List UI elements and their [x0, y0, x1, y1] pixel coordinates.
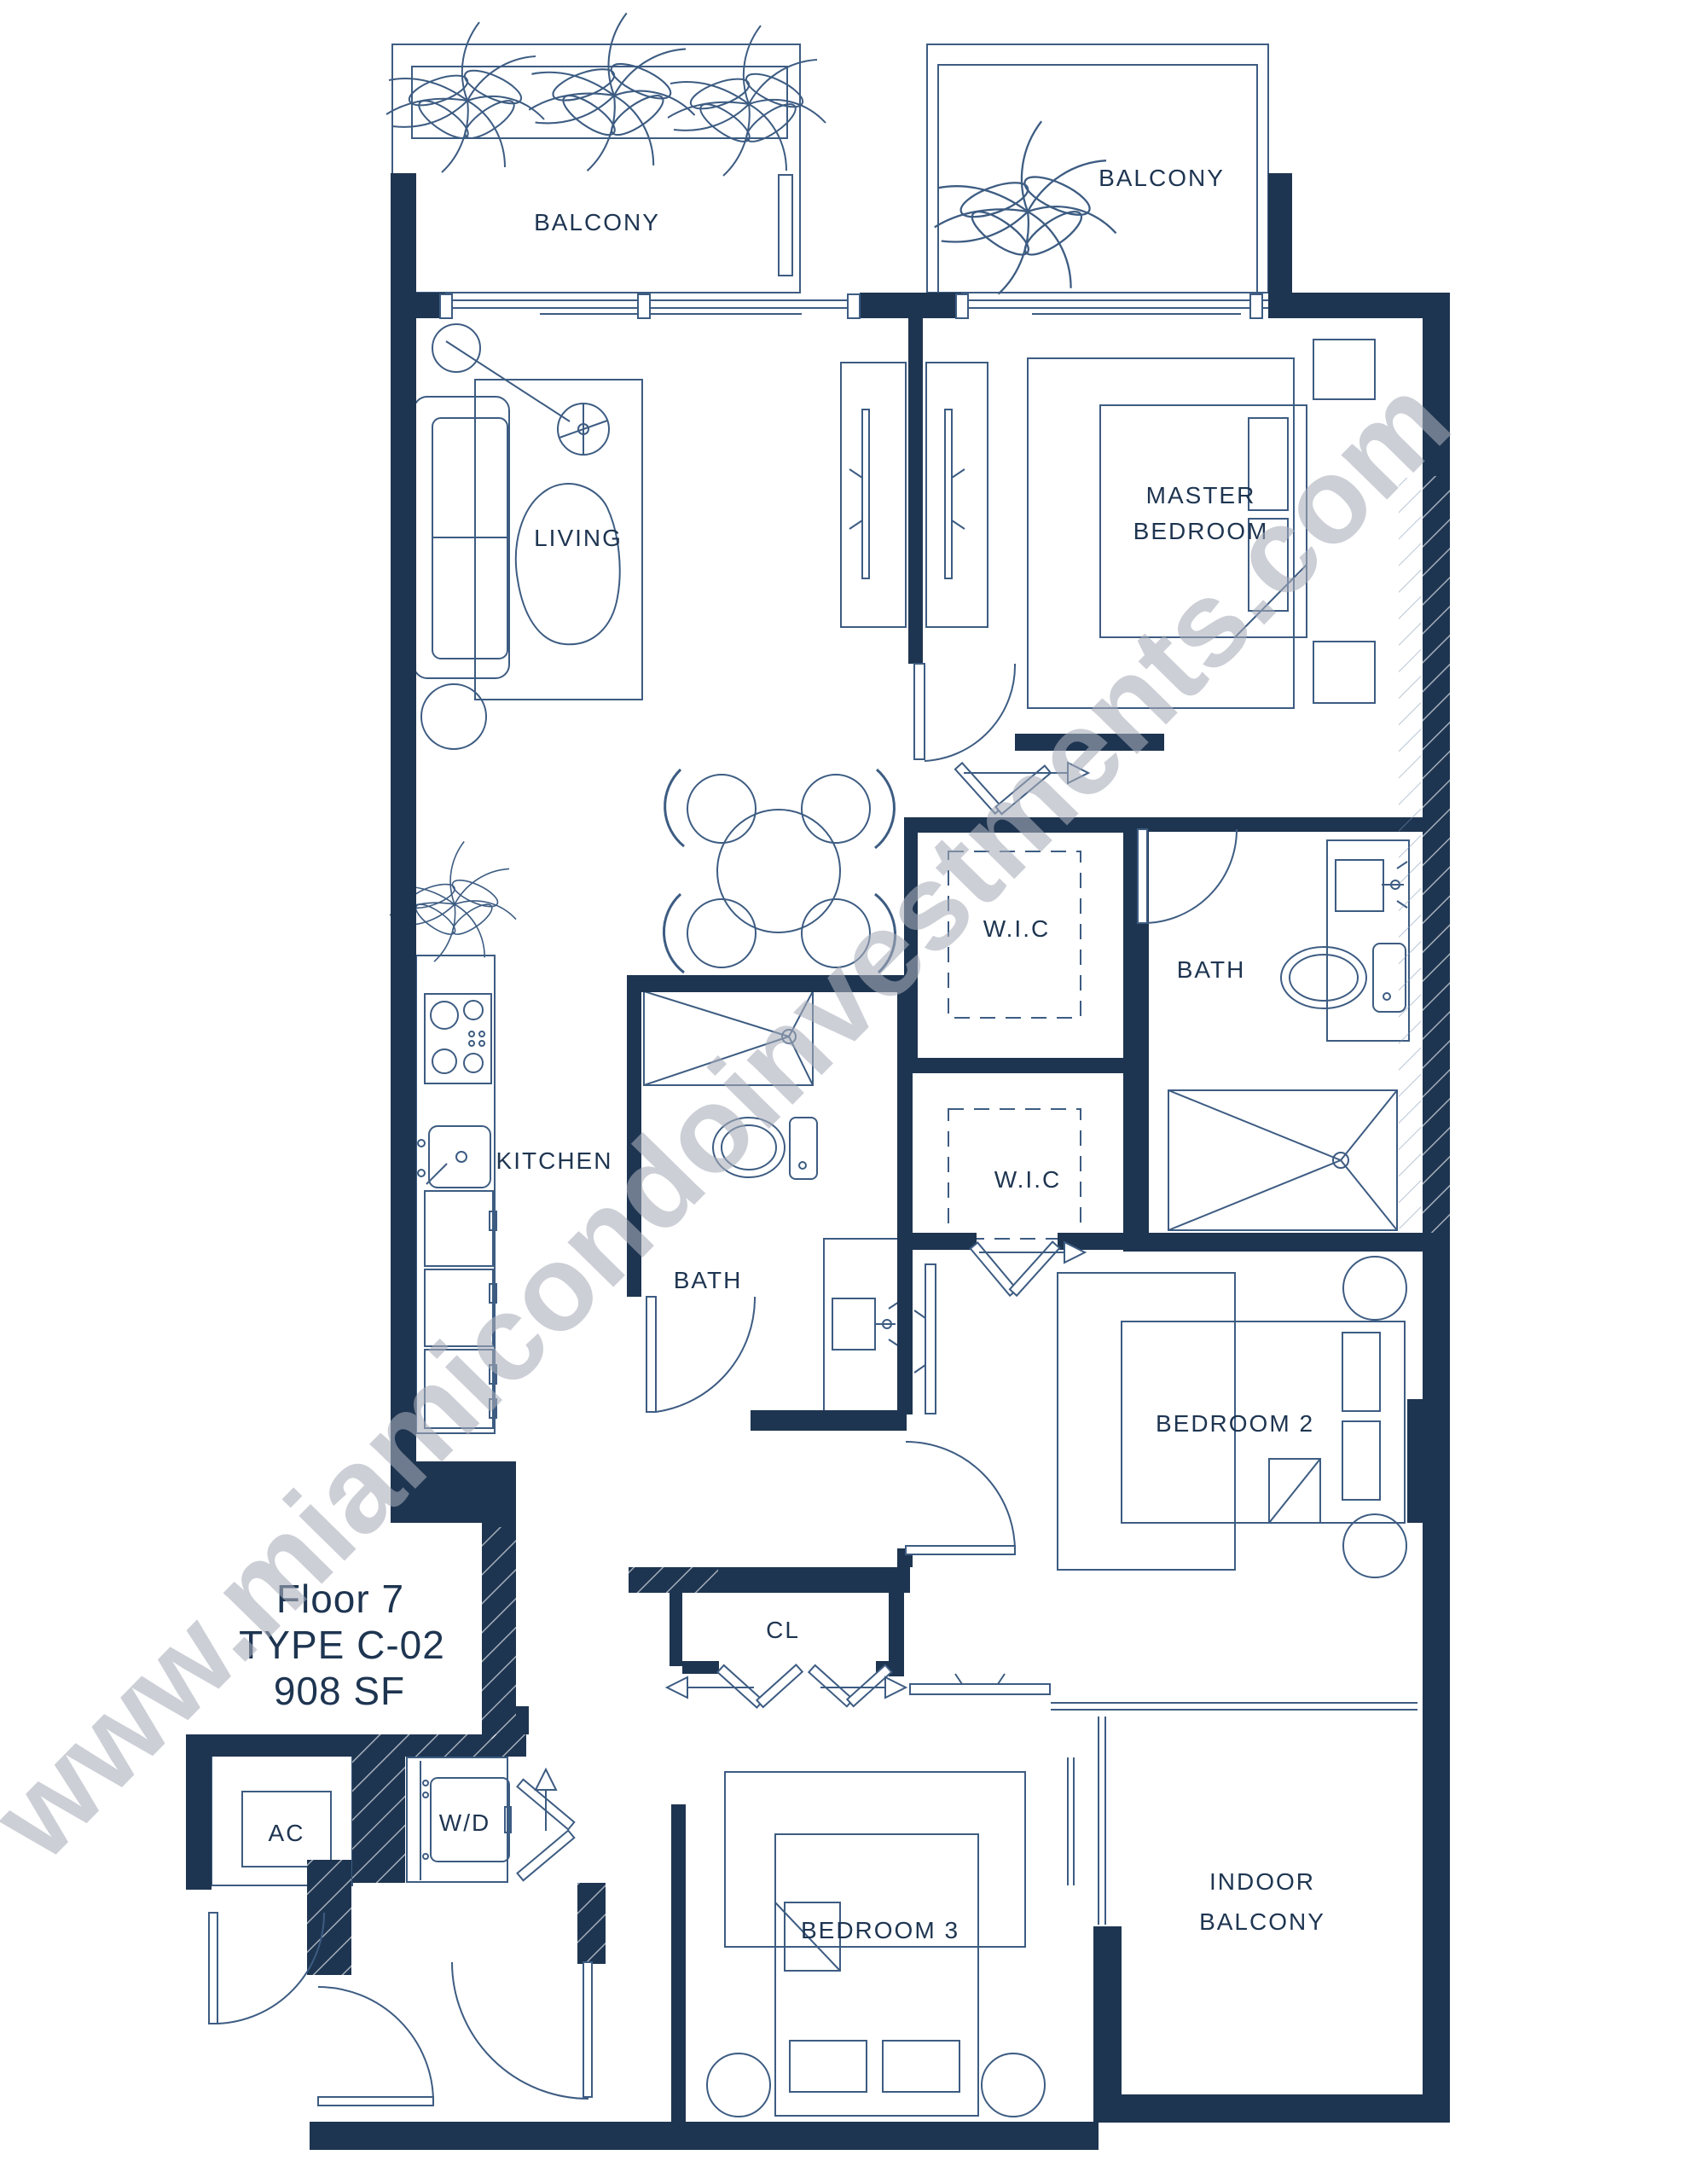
floorplan-page: BALCONY BALCONY LIVING MASTER BEDROOM W.… [0, 0, 1687, 2184]
title-area: 908 SF [274, 1669, 405, 1713]
label-indoor-line1: INDOOR [1209, 1868, 1315, 1895]
label-balcony-left: BALCONY [534, 209, 660, 235]
label-wic2: W.I.C [994, 1166, 1061, 1193]
label-bedroom2: BEDROOM 2 [1156, 1410, 1314, 1437]
label-bath2: BATH [674, 1267, 743, 1293]
label-indoor-line2: BALCONY [1199, 1908, 1325, 1935]
label-bath-master: BATH [1177, 956, 1246, 983]
label-living: LIVING [534, 525, 623, 551]
label-balcony-right: BALCONY [1099, 165, 1225, 191]
label-ac: AC [269, 1820, 305, 1846]
label-wd: W/D [439, 1809, 490, 1836]
label-closet: CL [766, 1617, 800, 1643]
label-bedroom3: BEDROOM 3 [801, 1917, 959, 1943]
